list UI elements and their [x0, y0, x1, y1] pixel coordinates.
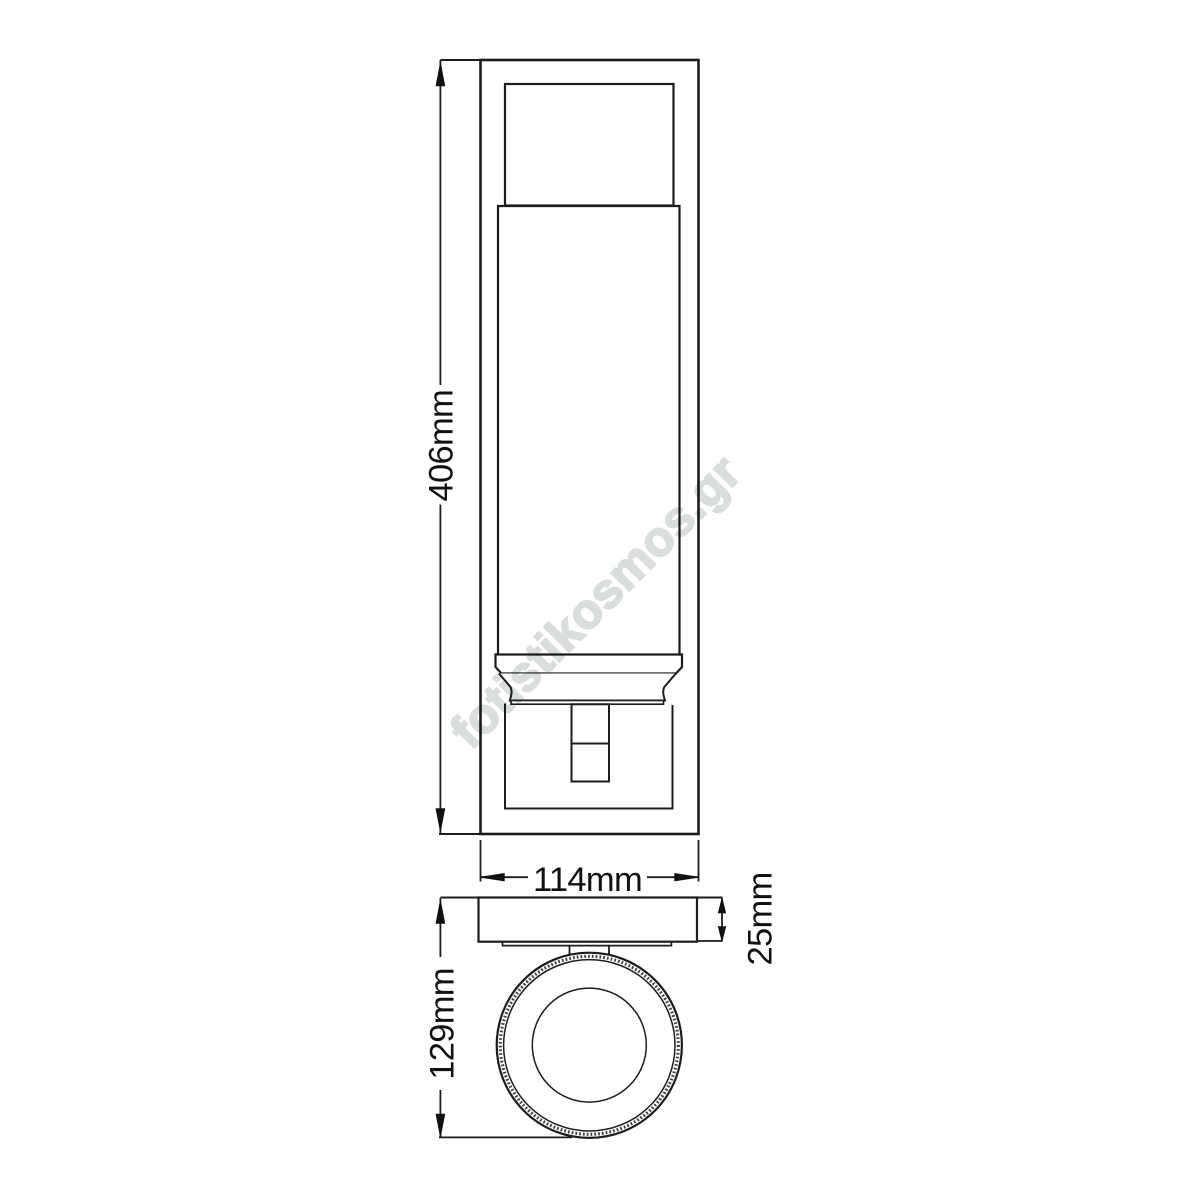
svg-text:406mm: 406mm [422, 390, 460, 502]
svg-text:25mm: 25mm [742, 872, 780, 965]
svg-text:129mm: 129mm [423, 968, 461, 1080]
svg-text:114mm: 114mm [533, 861, 642, 899]
